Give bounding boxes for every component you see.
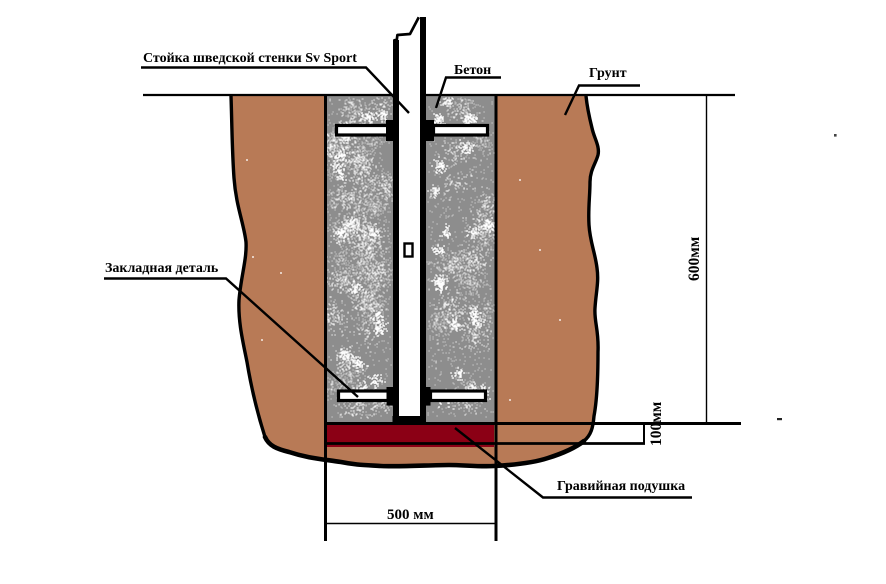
svg-text:Бетон: Бетон — [454, 63, 491, 78]
svg-text:Закладная деталь: Закладная деталь — [105, 261, 219, 276]
svg-text:100мм: 100мм — [648, 401, 665, 446]
svg-text:600мм: 600мм — [686, 236, 703, 281]
svg-text:500 мм: 500 мм — [387, 507, 434, 523]
svg-text:Гравийная подушка: Гравийная подушка — [557, 479, 685, 494]
svg-text:Стойка шведской стенки Sv Spor: Стойка шведской стенки Sv Sport — [143, 51, 357, 66]
svg-text:Грунт: Грунт — [589, 66, 627, 81]
